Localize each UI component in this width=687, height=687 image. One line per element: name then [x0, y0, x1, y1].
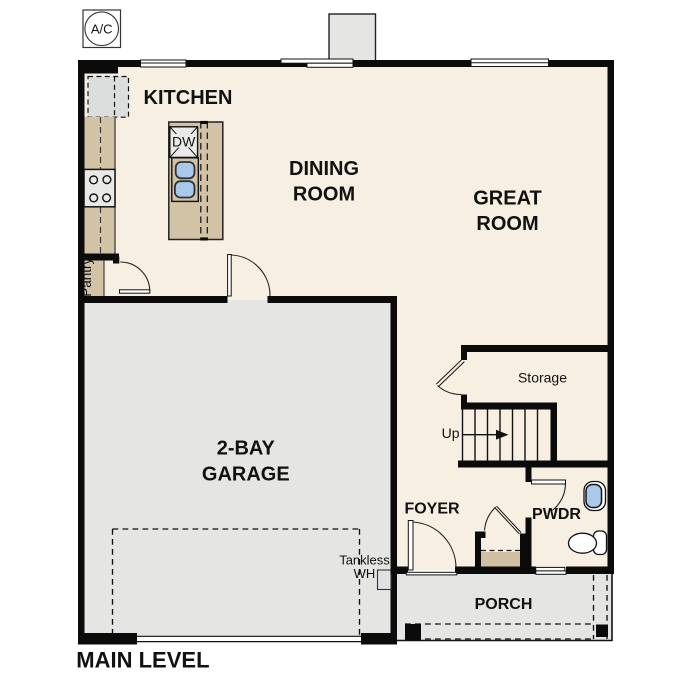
svg-text:FOYER: FOYER	[404, 501, 460, 518]
svg-text:GREAT: GREAT	[473, 188, 542, 210]
svg-text:Storage: Storage	[518, 370, 567, 386]
svg-text:Up: Up	[442, 425, 460, 441]
svg-text:PWDR: PWDR	[532, 506, 581, 523]
svg-text:A/C: A/C	[91, 21, 113, 36]
svg-text:ROOM: ROOM	[476, 213, 538, 235]
svg-text:2-BAY: 2-BAY	[217, 438, 276, 460]
svg-text:PORCH: PORCH	[475, 596, 533, 613]
svg-text:KITCHEN: KITCHEN	[144, 87, 233, 109]
svg-text:MAIN LEVEL: MAIN LEVEL	[76, 648, 209, 673]
svg-text:GARAGE: GARAGE	[202, 464, 290, 486]
svg-text:WH: WH	[354, 566, 376, 581]
svg-text:ROOM: ROOM	[293, 184, 355, 206]
svg-text:DINING: DINING	[289, 158, 359, 180]
svg-text:DW: DW	[172, 133, 196, 149]
